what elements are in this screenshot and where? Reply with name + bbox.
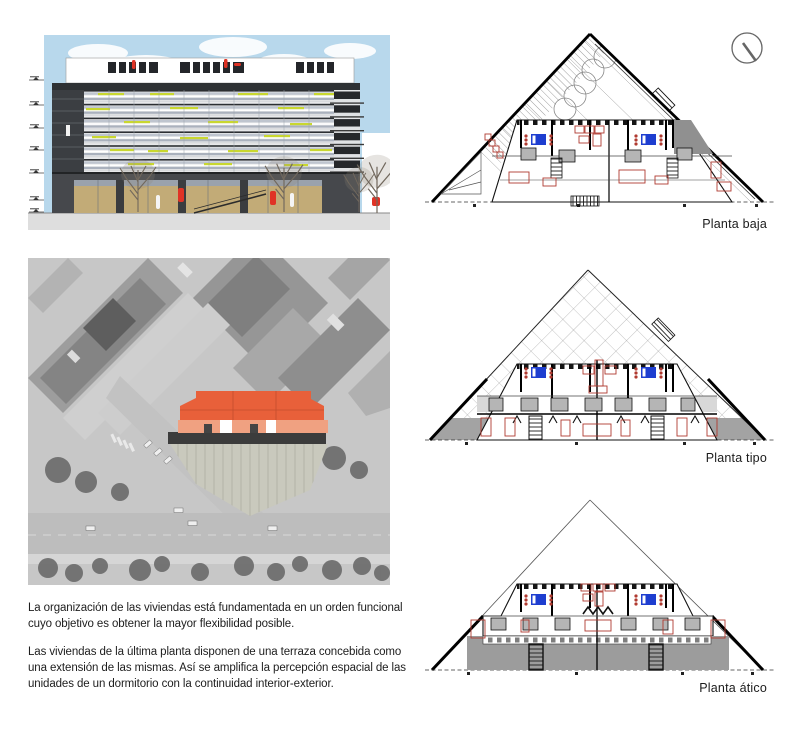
planta-tipo-drawing — [425, 266, 775, 446]
aerial-site-photo — [28, 258, 390, 585]
stair — [529, 644, 543, 670]
plan-label-planta-tipo: Planta tipo — [425, 451, 775, 465]
plan-label-planta-atico: Planta ático — [425, 681, 775, 695]
planta-baja-drawing — [425, 30, 775, 212]
stair — [651, 416, 664, 440]
aerial-photo-figure — [28, 258, 390, 585]
site-building-roof — [180, 391, 324, 420]
stair — [667, 158, 678, 178]
plan-label-planta-baja: Planta baja — [425, 217, 775, 231]
ground-floor — [52, 174, 380, 213]
stair — [649, 644, 663, 670]
ground-strip — [28, 213, 390, 230]
penthouse-level — [66, 58, 354, 83]
apartment-block — [485, 120, 732, 206]
apartment-block — [467, 584, 729, 670]
document-page: La organización de las viviendas está fu… — [0, 0, 800, 730]
corner-ramp — [441, 152, 481, 194]
apartment-block — [477, 360, 717, 440]
description-text: La organización de las viviendas está fu… — [28, 601, 406, 705]
plan-planta-tipo: Planta tipo — [425, 266, 775, 465]
level-markers — [29, 76, 44, 212]
elevation-figure — [28, 33, 390, 230]
planta-atico-drawing — [425, 496, 775, 676]
plan-planta-atico: Planta ático — [425, 496, 775, 695]
building-elevation-drawing — [28, 33, 390, 230]
plan-planta-baja: Planta baja — [425, 30, 775, 231]
paragraph-1: La organización de las viviendas está fu… — [28, 601, 406, 632]
stair — [529, 416, 542, 440]
entrance-steps — [571, 196, 599, 206]
paragraph-2: Las viviendas de la última planta dispon… — [28, 645, 406, 692]
north-arrow-icon — [732, 33, 762, 63]
facade — [52, 83, 364, 174]
stair — [551, 158, 562, 178]
